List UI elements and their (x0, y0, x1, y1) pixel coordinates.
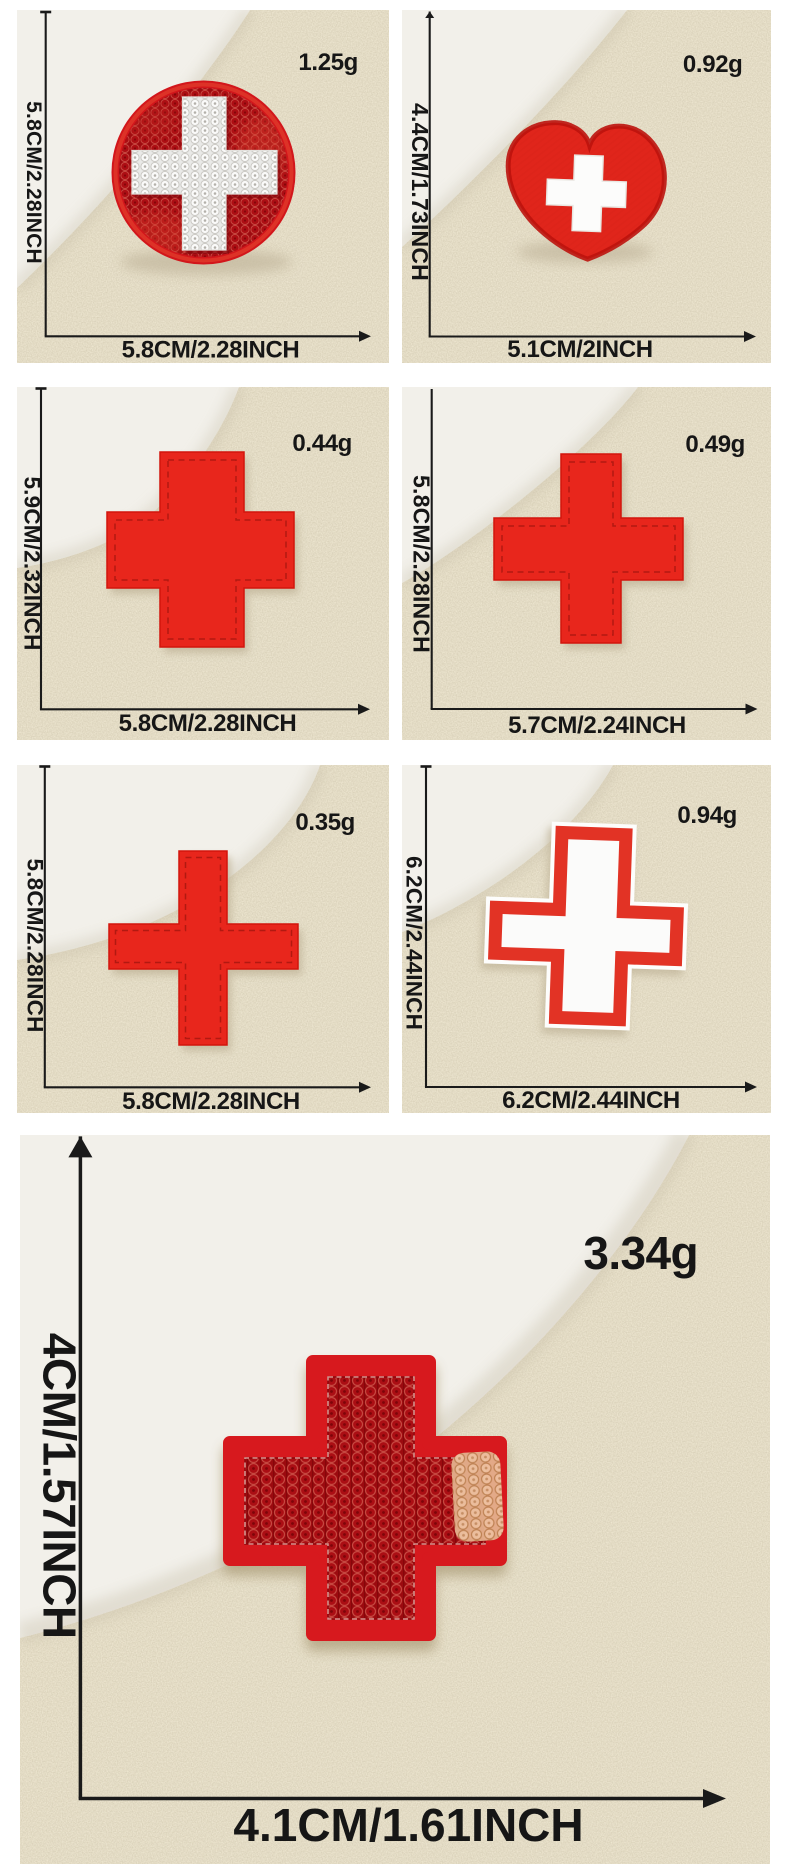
svg-text:5.1CM/2INCH: 5.1CM/2INCH (507, 336, 653, 363)
svg-text:5.8CM/2.28INCH: 5.8CM/2.28INCH (409, 475, 435, 653)
svg-text:5.7CM/2.24INCH: 5.7CM/2.24INCH (508, 712, 686, 739)
svg-text:0.49g: 0.49g (685, 431, 745, 458)
svg-text:3.34g: 3.34g (583, 1227, 698, 1279)
svg-text:4CM/1.57INCH: 4CM/1.57INCH (34, 1333, 86, 1639)
svg-text:0.94g: 0.94g (677, 802, 737, 829)
svg-text:5.8CM/2.28INCH: 5.8CM/2.28INCH (119, 710, 297, 737)
svg-text:4.1CM/1.61INCH: 4.1CM/1.61INCH (233, 1799, 583, 1851)
svg-text:0.35g: 0.35g (295, 809, 355, 836)
svg-text:1.25g: 1.25g (298, 49, 358, 76)
svg-text:0.92g: 0.92g (683, 51, 743, 78)
svg-text:5.9CM/2.32INCH: 5.9CM/2.32INCH (20, 476, 45, 650)
svg-text:5.8CM/2.28INCH: 5.8CM/2.28INCH (22, 101, 45, 264)
svg-text:6.2CM/2.44INCH: 6.2CM/2.44INCH (502, 1087, 680, 1114)
svg-text:5.8CM/2.28INCH: 5.8CM/2.28INCH (23, 858, 48, 1032)
svg-text:0.44g: 0.44g (292, 430, 352, 457)
svg-text:5.8CM/2.28INCH: 5.8CM/2.28INCH (122, 1088, 300, 1115)
svg-text:4.4CM/1.73INCH: 4.4CM/1.73INCH (407, 103, 433, 281)
svg-text:5.8CM/2.28INCH: 5.8CM/2.28INCH (122, 337, 300, 364)
svg-text:6.2CM/2.44INCH: 6.2CM/2.44INCH (402, 856, 427, 1030)
